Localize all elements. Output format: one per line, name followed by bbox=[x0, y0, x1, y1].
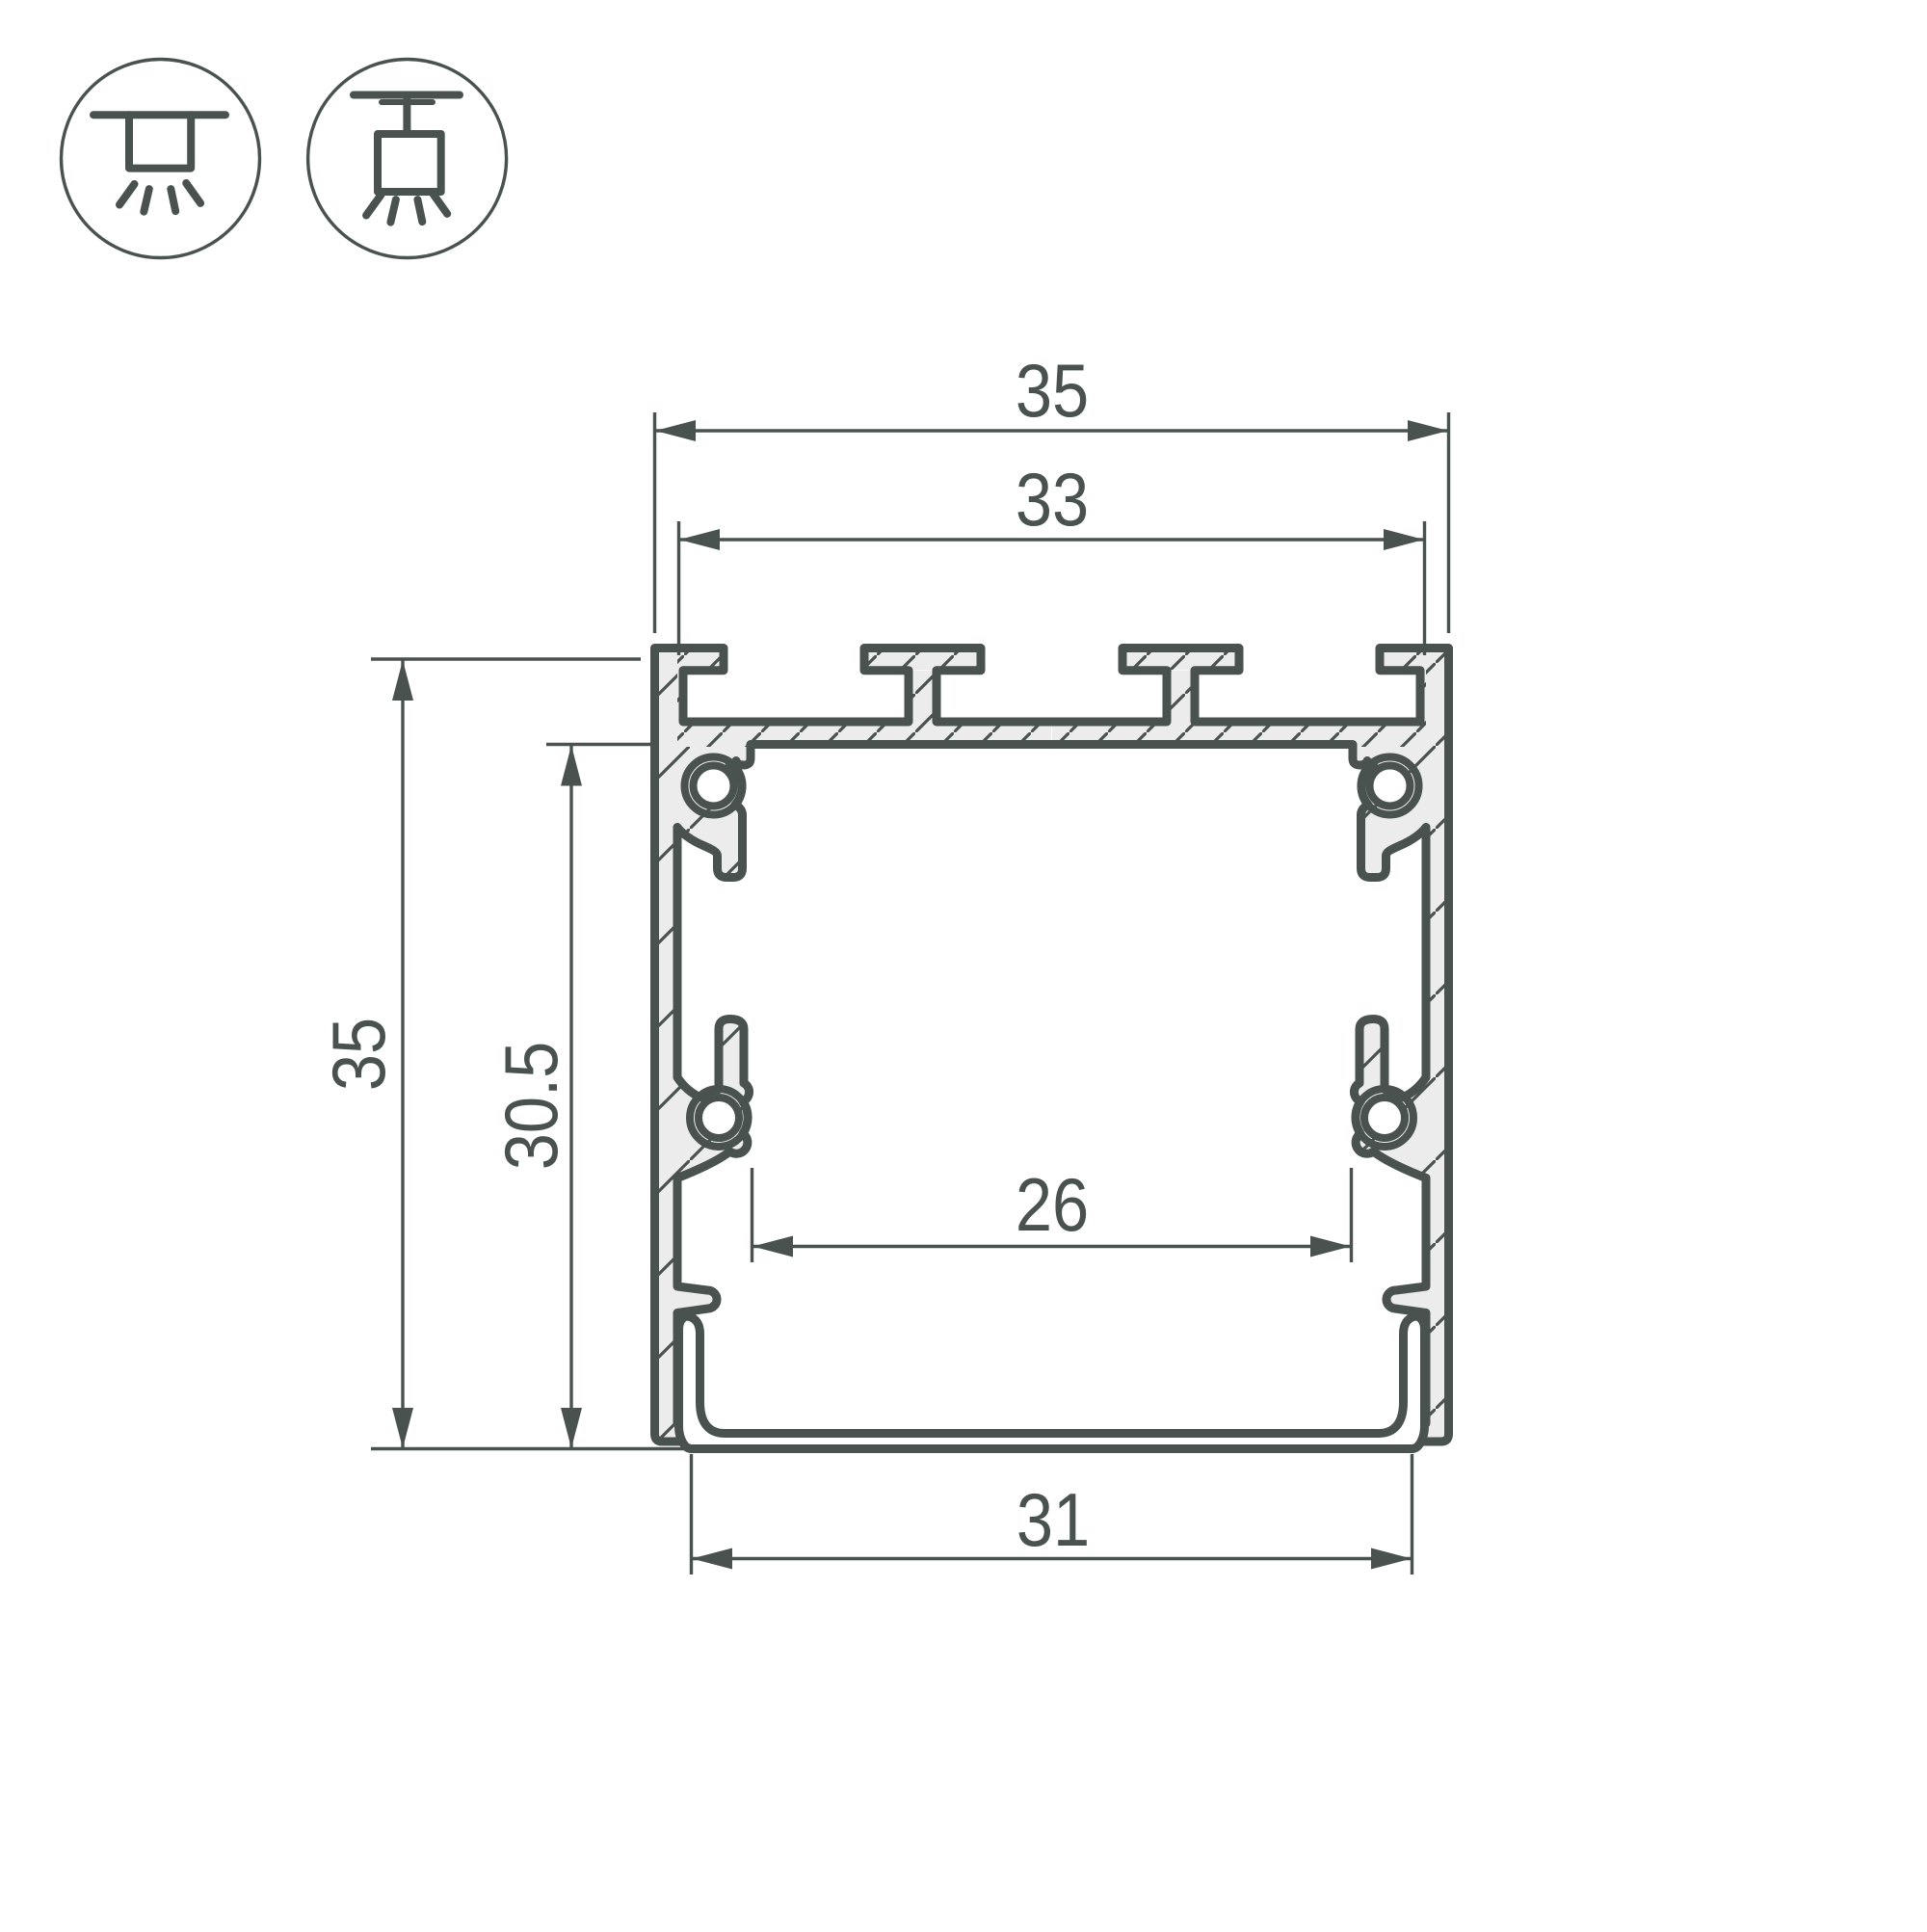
svg-text:31: 31 bbox=[1016, 1477, 1090, 1562]
svg-text:35: 35 bbox=[316, 1018, 401, 1091]
svg-text:30.5: 30.5 bbox=[488, 1042, 573, 1171]
svg-text:26: 26 bbox=[1016, 1162, 1089, 1247]
svg-text:33: 33 bbox=[1016, 457, 1089, 542]
svg-text:35: 35 bbox=[1016, 348, 1089, 433]
